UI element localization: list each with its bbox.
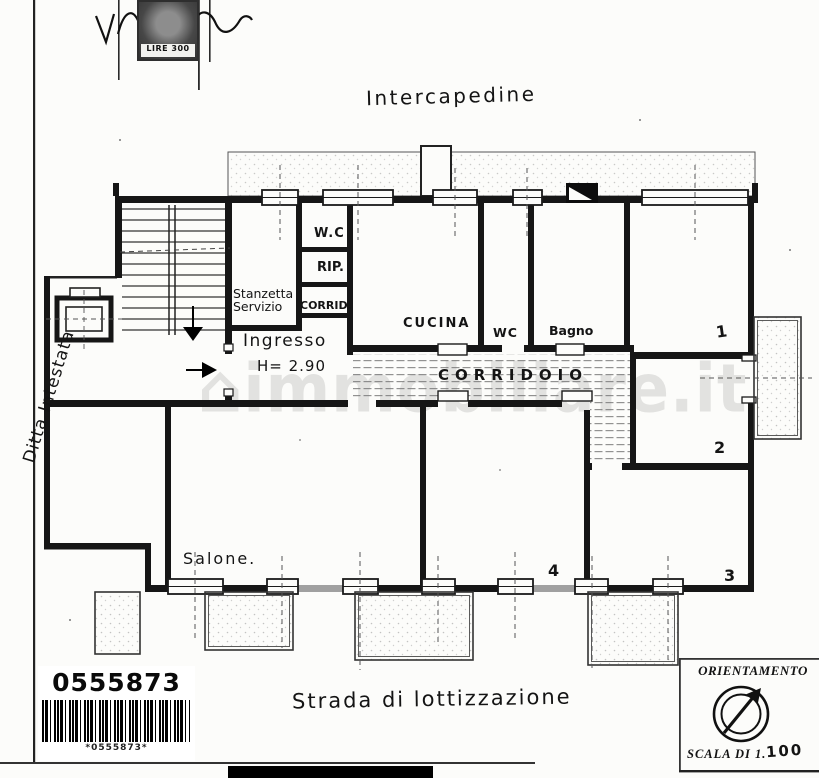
stanzetta-line2: Servizio bbox=[233, 300, 293, 313]
street-label: Strada di lottizzazione bbox=[292, 686, 572, 713]
scanned-floorplan-sheet: ⌂immobiliare.it bbox=[0, 0, 819, 778]
barcode-number: 0555873 bbox=[38, 668, 195, 697]
room-number-4: 4 bbox=[548, 563, 559, 580]
room-number-1: 1 bbox=[715, 323, 728, 341]
room-label-corridoio: CORRIDOIO bbox=[438, 368, 588, 384]
intercapedine-label: Intercapedine bbox=[366, 84, 537, 109]
room-label-wc: WC bbox=[493, 326, 518, 339]
ingresso-height: H= 2.90 bbox=[257, 359, 326, 375]
plan-linework bbox=[0, 0, 819, 778]
barcode-block: 0555873 *0555873* bbox=[38, 666, 195, 761]
compass-icon bbox=[714, 687, 768, 741]
orientation-title: ORIENTAMENTO bbox=[690, 664, 816, 678]
room-label-stanzetta: Stanzetta Servizio bbox=[233, 287, 293, 313]
scale-value: 100 bbox=[765, 743, 803, 761]
barcode-caption: *0555873* bbox=[38, 743, 195, 753]
room-number-3: 3 bbox=[724, 568, 735, 585]
room-label-ingresso: Ingresso bbox=[243, 333, 327, 351]
room-label-cucina: CUCINA bbox=[403, 317, 470, 331]
barcode-icon bbox=[42, 700, 190, 742]
room-label-bagno: Bagno bbox=[549, 324, 593, 337]
windows bbox=[168, 190, 756, 594]
room-number-2: 2 bbox=[714, 440, 725, 457]
intercapedine-strip bbox=[228, 146, 755, 196]
room-label-corrid: CORRID. bbox=[300, 300, 352, 312]
scale-label: SCALA DI 1. bbox=[687, 748, 766, 761]
room-label-wc-top: W.C bbox=[314, 227, 345, 241]
entrance-arrow bbox=[186, 362, 217, 378]
stamp-value-label: LIRE 300 bbox=[141, 44, 195, 57]
revenue-stamp: LIRE 300 bbox=[137, 0, 199, 61]
room-label-rip: RIP. bbox=[317, 261, 344, 275]
room-label-salone: Salone. bbox=[183, 551, 256, 568]
staircase bbox=[120, 205, 230, 341]
